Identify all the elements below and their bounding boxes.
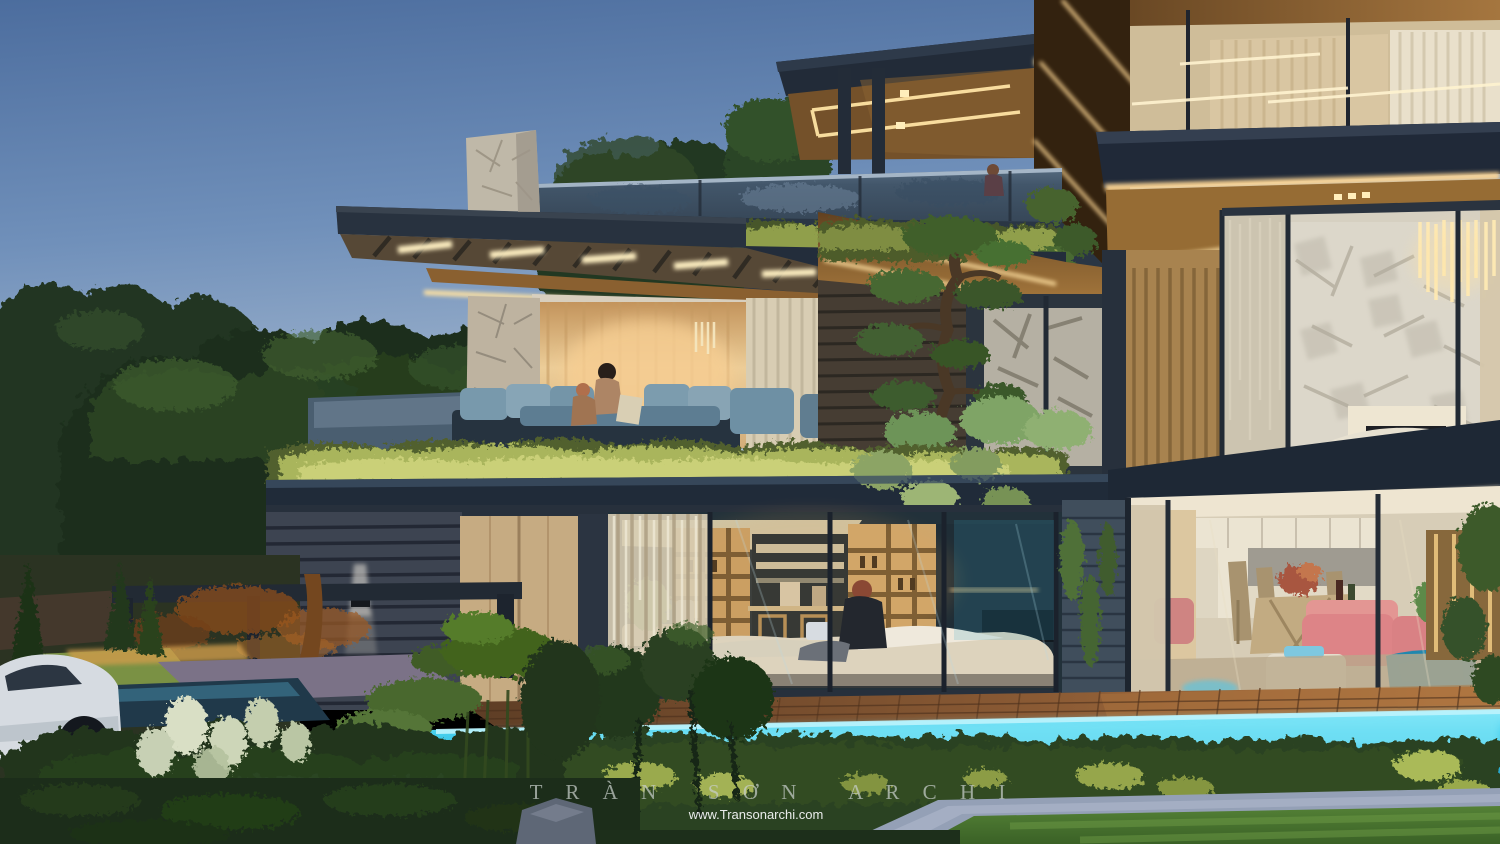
svg-text:www.Transonarchi.com: www.Transonarchi.com [688,807,824,822]
svg-text:T R À N S Ơ N A R C H I: T R À N S Ơ N A R C H I [530,780,1015,804]
